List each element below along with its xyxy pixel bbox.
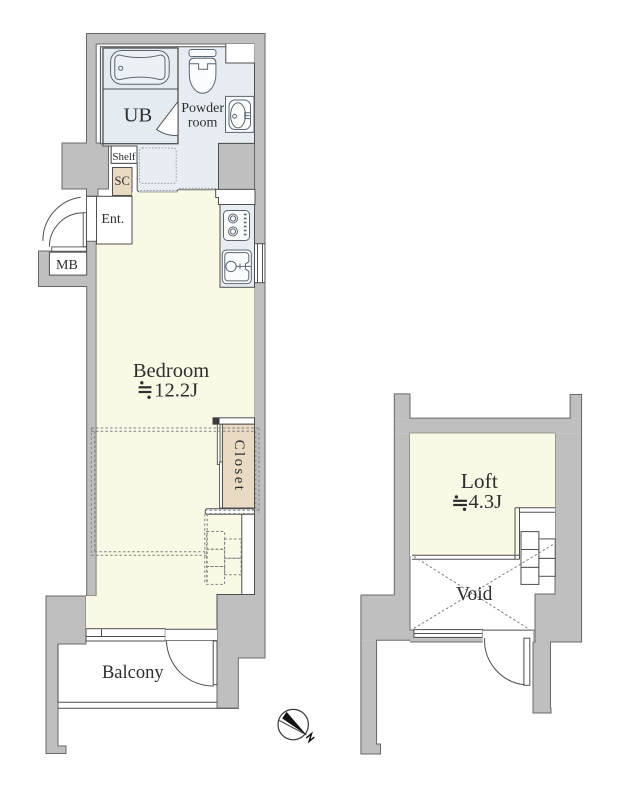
svg-text:4.3J: 4.3J xyxy=(468,491,502,513)
svg-text:Loft: Loft xyxy=(461,469,498,493)
svg-text:Closet: Closet xyxy=(231,440,247,493)
svg-text:Balcony: Balcony xyxy=(102,663,164,683)
svg-text:Ent.: Ent. xyxy=(101,212,124,227)
svg-text:room: room xyxy=(188,116,218,131)
svg-text:SC: SC xyxy=(115,174,130,188)
svg-text:Shelf: Shelf xyxy=(112,151,136,163)
svg-text:MB: MB xyxy=(56,258,78,273)
svg-text:Void: Void xyxy=(456,584,493,605)
svg-text:12.2J: 12.2J xyxy=(154,380,198,402)
svg-text:Powder: Powder xyxy=(181,101,224,116)
svg-text:UB: UB xyxy=(124,105,152,127)
